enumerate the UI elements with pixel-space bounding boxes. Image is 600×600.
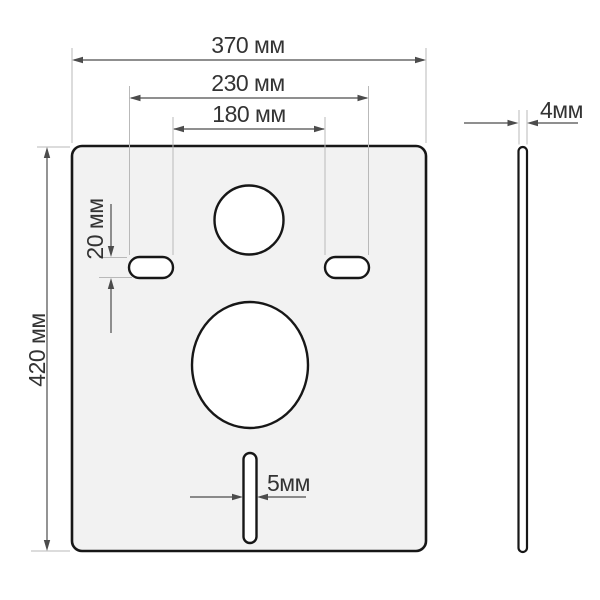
dim-label-plate-width: 370 мм <box>211 32 284 58</box>
dim-label-thickness: 4мм <box>540 97 583 123</box>
right-slot <box>325 257 369 278</box>
arrowhead <box>44 540 50 551</box>
dim-label-bottom-slot-width: 5мм <box>267 470 310 496</box>
arrowhead <box>72 57 83 63</box>
left-slot <box>129 257 173 278</box>
dim-label-slot-height: 20 мм <box>82 198 108 259</box>
arrowhead <box>508 120 519 126</box>
side-profile-outline <box>519 147 528 552</box>
large-hole <box>192 302 308 428</box>
arrowhead <box>173 126 184 132</box>
dim-label-plate-height: 420 мм <box>24 313 50 386</box>
arrowhead <box>314 126 325 132</box>
small-hole <box>215 186 284 255</box>
arrowhead <box>358 95 369 101</box>
arrowhead <box>527 120 538 126</box>
arrowhead <box>130 95 141 101</box>
dim-label-slots-inner-span: 180 мм <box>212 101 285 127</box>
front-view <box>72 146 426 551</box>
dimension-plate-height: 420 мм <box>24 147 70 551</box>
side-view <box>519 147 528 552</box>
technical-drawing: 370 мм 230 мм 180 мм 20 мм 420 мм <box>0 0 600 600</box>
dim-label-slots-outer-span: 230 мм <box>211 70 284 96</box>
bottom-slot <box>244 453 257 543</box>
dimension-thickness: 4мм <box>464 97 583 145</box>
arrowhead <box>44 147 50 158</box>
arrowhead <box>415 57 426 63</box>
